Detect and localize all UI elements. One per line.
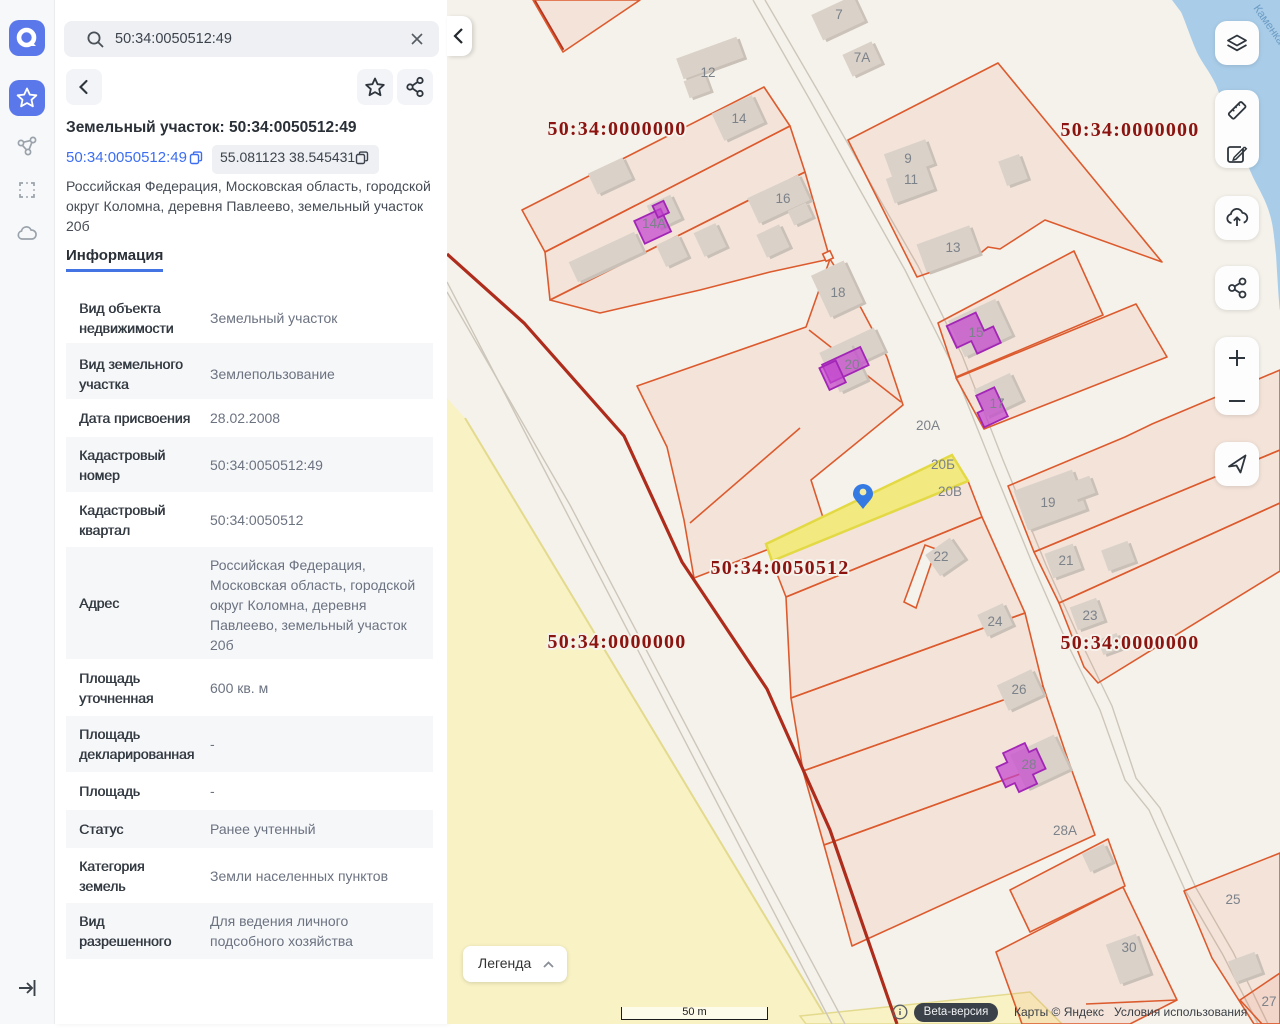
svg-text:30: 30 (1121, 940, 1136, 955)
svg-text:17: 17 (989, 396, 1004, 411)
svg-text:11: 11 (904, 172, 918, 187)
svg-text:12: 12 (700, 65, 715, 80)
svg-text:16: 16 (775, 191, 790, 206)
svg-text:9: 9 (904, 151, 912, 166)
svg-text:50:34:0050512: 50:34:0050512 (711, 557, 850, 579)
svg-text:13: 13 (945, 240, 960, 255)
svg-text:27: 27 (1261, 994, 1276, 1009)
svg-text:50:34:0000000: 50:34:0000000 (548, 631, 687, 653)
svg-text:18: 18 (830, 285, 845, 300)
svg-text:23: 23 (1082, 608, 1097, 623)
svg-text:20А: 20А (916, 418, 940, 433)
svg-text:50:34:0000000: 50:34:0000000 (1061, 632, 1200, 654)
svg-text:50:34:0000000: 50:34:0000000 (1061, 119, 1200, 141)
svg-text:20Б: 20Б (931, 457, 955, 472)
svg-text:28А: 28А (1053, 823, 1077, 838)
svg-text:22: 22 (933, 549, 948, 564)
svg-text:28: 28 (1021, 757, 1036, 772)
svg-text:14А: 14А (642, 216, 666, 231)
svg-text:14: 14 (731, 111, 747, 126)
svg-text:25: 25 (1225, 892, 1240, 907)
svg-text:50:34:0000000: 50:34:0000000 (548, 118, 687, 140)
svg-text:20: 20 (844, 357, 859, 372)
svg-text:26: 26 (1011, 682, 1026, 697)
svg-text:20В: 20В (938, 484, 962, 499)
svg-text:7А: 7А (854, 50, 871, 65)
svg-text:21: 21 (1058, 553, 1073, 568)
svg-text:15: 15 (968, 325, 983, 340)
svg-text:7: 7 (835, 7, 843, 22)
svg-text:19: 19 (1040, 495, 1055, 510)
svg-text:24: 24 (987, 614, 1003, 629)
